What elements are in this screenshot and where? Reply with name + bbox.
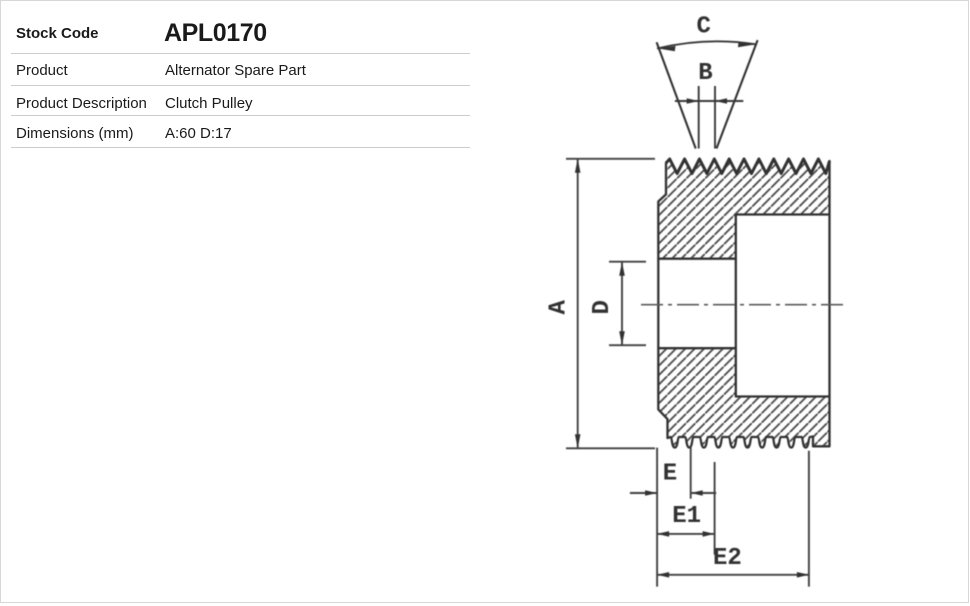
svg-text:C: C <box>696 14 710 41</box>
svg-text:D: D <box>589 300 616 314</box>
svg-text:B: B <box>698 60 712 87</box>
svg-text:E2: E2 <box>713 545 742 572</box>
svg-text:A: A <box>546 300 573 315</box>
svg-text:E1: E1 <box>672 503 701 530</box>
svg-text:E: E <box>663 461 677 488</box>
